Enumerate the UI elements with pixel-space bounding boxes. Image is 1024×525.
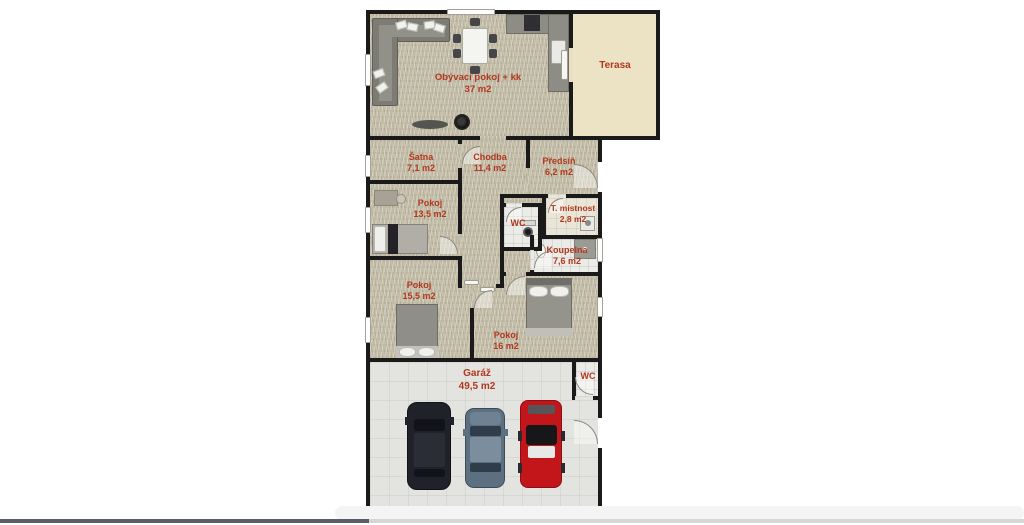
room-area: 6,2 m2 — [545, 167, 573, 177]
car-suv — [407, 402, 451, 490]
dining-chair — [453, 34, 461, 43]
window — [365, 207, 371, 233]
room-label-pokoj3: Pokoj 16 m2 — [493, 330, 519, 353]
door-leaf — [464, 280, 479, 285]
dining-chair — [470, 18, 480, 26]
desk-chair — [396, 194, 406, 204]
room-name: Koupelna — [546, 245, 587, 255]
window — [597, 297, 603, 317]
progress-remaining — [369, 519, 1024, 523]
room-area: 11,4 m2 — [474, 163, 507, 173]
room-name: Pokoj — [494, 330, 519, 340]
bed-pillow — [399, 347, 416, 357]
wall — [500, 247, 542, 251]
room-label-chodba: Chodba 11,4 m2 — [473, 152, 507, 175]
window — [365, 155, 371, 177]
room-area: 7,6 m2 — [553, 256, 581, 266]
room-name: WC — [511, 218, 526, 228]
window — [447, 9, 495, 15]
wall — [538, 235, 602, 239]
progress-watched — [0, 519, 369, 523]
room-label-terrace: Terasa — [599, 60, 631, 73]
door-opening — [569, 48, 573, 82]
dining-chair — [453, 49, 461, 58]
room-label-predsin: Předsíň 6,2 m2 — [542, 156, 575, 179]
window — [597, 238, 603, 262]
tv-console — [412, 120, 448, 129]
dining-chair — [489, 49, 497, 58]
room-area: 7,1 m2 — [407, 163, 435, 173]
room-area: 2,8 m2 — [560, 214, 586, 224]
window — [365, 317, 371, 343]
room-terrace-floor — [573, 14, 656, 136]
door-opening — [526, 168, 530, 194]
floor-plan: Obývací pokoj + kk 37 m2 Terasa Šatna 7,… — [366, 10, 660, 517]
car-sports — [520, 400, 562, 488]
wall — [598, 136, 602, 516]
room-label-wc: WC — [511, 218, 526, 229]
dining-chair — [489, 34, 497, 43]
bed-pillow — [374, 226, 386, 252]
room-label-garaz: Garáž 49,5 m2 — [459, 368, 496, 393]
room-area: 13,5 m2 — [413, 209, 446, 219]
bed-pillow — [550, 286, 569, 297]
room-name: WC — [581, 371, 596, 381]
room-label-tmistnost: T. místnost 2,8 m2 — [551, 203, 595, 224]
bed-pillow — [418, 347, 435, 357]
room-area: 49,5 m2 — [459, 381, 496, 392]
desk — [374, 190, 398, 206]
room-area: 15,5 m2 — [402, 291, 435, 301]
door-opening — [458, 234, 462, 256]
bed-headboard — [526, 278, 572, 285]
room-name: Garáž — [463, 368, 491, 379]
door-leaf — [561, 50, 568, 80]
door-opening — [480, 136, 506, 140]
room-name: Terasa — [599, 60, 631, 71]
window — [365, 54, 371, 86]
room-label-garage-wc: WC — [581, 371, 596, 382]
room-label-koupelna: Koupelna 7,6 m2 — [546, 245, 587, 268]
room-name: Šatna — [409, 152, 434, 162]
room-area: 16 m2 — [493, 341, 519, 351]
video-progress-bar[interactable] — [0, 505, 1024, 525]
room-name: Předsíň — [542, 156, 575, 166]
wall — [366, 10, 660, 14]
room-name: Obývací pokoj + kk — [435, 72, 521, 83]
room-label-pokoj2: Pokoj 15,5 m2 — [402, 280, 435, 303]
wall — [366, 256, 462, 260]
room-label-pokoj1: Pokoj 13,5 m2 — [413, 198, 446, 221]
wall — [656, 10, 660, 140]
room-label-living: Obývací pokoj + kk 37 m2 — [435, 72, 521, 96]
room-area: 37 m2 — [465, 84, 492, 95]
plant-pot — [454, 114, 470, 130]
room-name: Pokoj — [418, 198, 443, 208]
wall — [366, 180, 462, 184]
wall — [366, 358, 602, 362]
room-name: Pokoj — [407, 280, 432, 290]
garage-side-door-opening — [598, 418, 602, 448]
entry-door-opening — [598, 162, 602, 192]
wall — [366, 136, 660, 140]
bed-blanket — [388, 224, 398, 254]
door-opening — [458, 144, 462, 168]
bed-pillow — [529, 286, 548, 297]
room-name: T. místnost — [551, 203, 595, 213]
room-name: Chodba — [473, 152, 507, 162]
door-opening — [548, 194, 566, 198]
door-opening — [575, 396, 593, 400]
progress-track-highlight — [335, 506, 1024, 520]
room-label-satna: Šatna 7,1 m2 — [407, 152, 435, 175]
dining-table — [462, 28, 488, 64]
bed-footboard — [526, 328, 572, 336]
page: Obývací pokoj + kk 37 m2 Terasa Šatna 7,… — [0, 0, 1024, 525]
stove — [524, 15, 540, 31]
car-sedan — [465, 408, 505, 488]
wall — [542, 194, 546, 239]
